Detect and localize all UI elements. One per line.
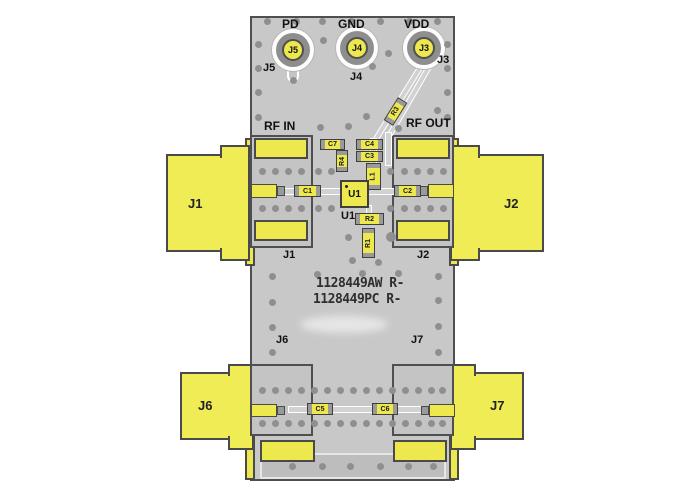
- component-c7: C7: [320, 139, 345, 150]
- part-number-line2: 1128449PC R-: [313, 292, 401, 307]
- via-dot: [395, 125, 402, 132]
- via-dot: [363, 387, 370, 394]
- connector-j6-label: J6: [198, 398, 212, 413]
- via-dot: [349, 257, 356, 264]
- via-dot: [386, 232, 396, 242]
- footprint-j2-pin: [428, 184, 454, 198]
- via-dot: [430, 463, 437, 470]
- via-dot: [345, 234, 352, 241]
- via-dot: [269, 324, 276, 331]
- via-dot: [328, 168, 335, 175]
- via-dot: [269, 299, 276, 306]
- via-dot: [298, 168, 305, 175]
- via-dot: [415, 420, 422, 427]
- via-dot: [369, 63, 376, 70]
- via-dot: [298, 420, 305, 427]
- via-dot: [434, 18, 441, 25]
- via-dot: [328, 205, 335, 212]
- via-dot: [444, 89, 451, 96]
- component-u1: U1: [340, 180, 369, 208]
- via-dot: [298, 205, 305, 212]
- via-dot: [324, 420, 331, 427]
- footprint-j1-pin: [251, 184, 277, 198]
- via-dot: [414, 205, 421, 212]
- via-dot: [440, 205, 447, 212]
- via-dot: [435, 273, 442, 280]
- label-rf-out: RF OUT: [406, 116, 451, 130]
- connector-j1-seam: [216, 158, 228, 248]
- via-dot: [405, 463, 412, 470]
- via-dot: [289, 463, 296, 470]
- via-dot: [363, 113, 370, 120]
- via-dot: [402, 387, 409, 394]
- connector-j1-label: J1: [188, 196, 202, 211]
- surface-smudge: [300, 316, 388, 333]
- footprint-j6-pin: [251, 404, 277, 417]
- via-dot: [428, 387, 435, 394]
- via-dot: [319, 18, 326, 25]
- via-dot: [444, 41, 451, 48]
- label-rf-in: RF IN: [264, 119, 295, 133]
- via-dot: [439, 420, 446, 427]
- via-dot: [435, 349, 442, 356]
- via-dot: [315, 205, 322, 212]
- footprint-j1-top-pad: [254, 138, 308, 159]
- connector-j2-seam: [472, 158, 484, 248]
- silk-j5: J5: [263, 62, 275, 74]
- via-dot: [440, 168, 447, 175]
- via-dot: [272, 205, 279, 212]
- connector-j7-label: J7: [490, 398, 504, 413]
- via-dot: [272, 168, 279, 175]
- via-dot: [337, 420, 344, 427]
- silk-j2: J2: [417, 249, 429, 261]
- via-dot: [317, 124, 324, 131]
- component-c1: C1: [294, 185, 321, 197]
- via-dot: [298, 387, 305, 394]
- component-c6: C6: [372, 403, 398, 415]
- footprint-j2-pin-cap: [420, 186, 428, 196]
- via-dot: [290, 77, 297, 84]
- via-dot: [319, 463, 326, 470]
- pad-j5-center: J5: [282, 39, 304, 61]
- via-dot: [375, 259, 382, 266]
- component-c5: C5: [307, 403, 333, 415]
- silk-j7: J7: [411, 334, 423, 346]
- label-pd: PD: [282, 17, 299, 31]
- label-vdd: VDD: [404, 17, 429, 31]
- via-dot: [272, 387, 279, 394]
- via-dot: [285, 420, 292, 427]
- via-dot: [337, 387, 344, 394]
- silk-j1: J1: [283, 249, 295, 261]
- silk-u1: U1: [341, 210, 355, 222]
- via-dot: [376, 387, 383, 394]
- footprint-j7-bottom-pad: [393, 440, 447, 462]
- via-dot: [401, 168, 408, 175]
- via-dot: [389, 420, 396, 427]
- via-dot: [285, 205, 292, 212]
- via-dot: [377, 463, 384, 470]
- via-dot: [427, 168, 434, 175]
- via-dot: [255, 65, 262, 72]
- connector-j2-label: J2: [504, 196, 518, 211]
- via-dot: [259, 387, 266, 394]
- via-dot: [285, 168, 292, 175]
- via-dot: [272, 420, 279, 427]
- via-dot: [435, 323, 442, 330]
- via-dot: [269, 273, 276, 280]
- footprint-j6-pin-cap: [277, 406, 285, 415]
- via-dot: [347, 463, 354, 470]
- component-c3: C3: [356, 151, 383, 162]
- silk-j3: J3: [437, 54, 449, 66]
- via-dot: [264, 18, 271, 25]
- via-dot: [311, 420, 318, 427]
- via-dot: [387, 168, 394, 175]
- via-dot: [311, 387, 318, 394]
- connector-j7-seam: [468, 376, 480, 436]
- via-dot: [401, 205, 408, 212]
- via-dot: [434, 107, 441, 114]
- via-dot: [320, 37, 327, 44]
- connector-j6-seam: [224, 376, 236, 436]
- via-dot: [285, 387, 292, 394]
- via-dot: [255, 114, 262, 121]
- via-dot: [255, 89, 262, 96]
- component-c2: C2: [394, 185, 421, 197]
- via-dot: [387, 205, 394, 212]
- via-dot: [259, 205, 266, 212]
- trace-vdd-vert2: [385, 132, 392, 166]
- via-dot: [389, 387, 396, 394]
- via-dot: [385, 50, 392, 57]
- via-dot: [350, 420, 357, 427]
- via-dot: [376, 420, 383, 427]
- footprint-j7-pin: [429, 404, 455, 417]
- pad-j4-center: J4: [346, 37, 368, 59]
- label-gnd: GND: [338, 17, 365, 31]
- u1-pin1-dot: [345, 185, 348, 188]
- silk-j6: J6: [276, 334, 288, 346]
- via-dot: [255, 41, 262, 48]
- pad-j3-center: J3: [413, 37, 435, 59]
- via-dot: [324, 387, 331, 394]
- via-dot: [269, 349, 276, 356]
- via-dot: [350, 387, 357, 394]
- footprint-j1-pin-cap: [277, 186, 285, 196]
- pcb-eval-board-diagram: J1 J2 J6 J7 J5 J4: [0, 0, 700, 500]
- via-dot: [435, 297, 442, 304]
- via-dot: [427, 205, 434, 212]
- via-dot: [414, 168, 421, 175]
- via-dot: [363, 420, 370, 427]
- footprint-j2-top-pad: [396, 138, 450, 159]
- via-dot: [439, 387, 446, 394]
- via-dot: [315, 168, 322, 175]
- footprint-j7-pin-cap: [421, 406, 429, 415]
- component-r4: R4: [336, 150, 348, 172]
- via-dot: [345, 123, 352, 130]
- via-dot: [428, 420, 435, 427]
- via-dot: [377, 18, 384, 25]
- via-dot: [415, 387, 422, 394]
- footprint-j2-bottom-pad: [396, 220, 450, 241]
- via-dot: [402, 420, 409, 427]
- component-r2: R2: [355, 213, 384, 225]
- silk-j4: J4: [350, 71, 362, 83]
- footprint-j6-bottom-pad: [260, 440, 315, 462]
- via-dot: [259, 168, 266, 175]
- part-number-line1: 1128449AW R-: [316, 276, 404, 291]
- via-dot: [259, 420, 266, 427]
- component-c4: C4: [356, 139, 383, 150]
- component-r1: R1: [362, 228, 375, 258]
- footprint-j1-bottom-pad: [254, 220, 308, 241]
